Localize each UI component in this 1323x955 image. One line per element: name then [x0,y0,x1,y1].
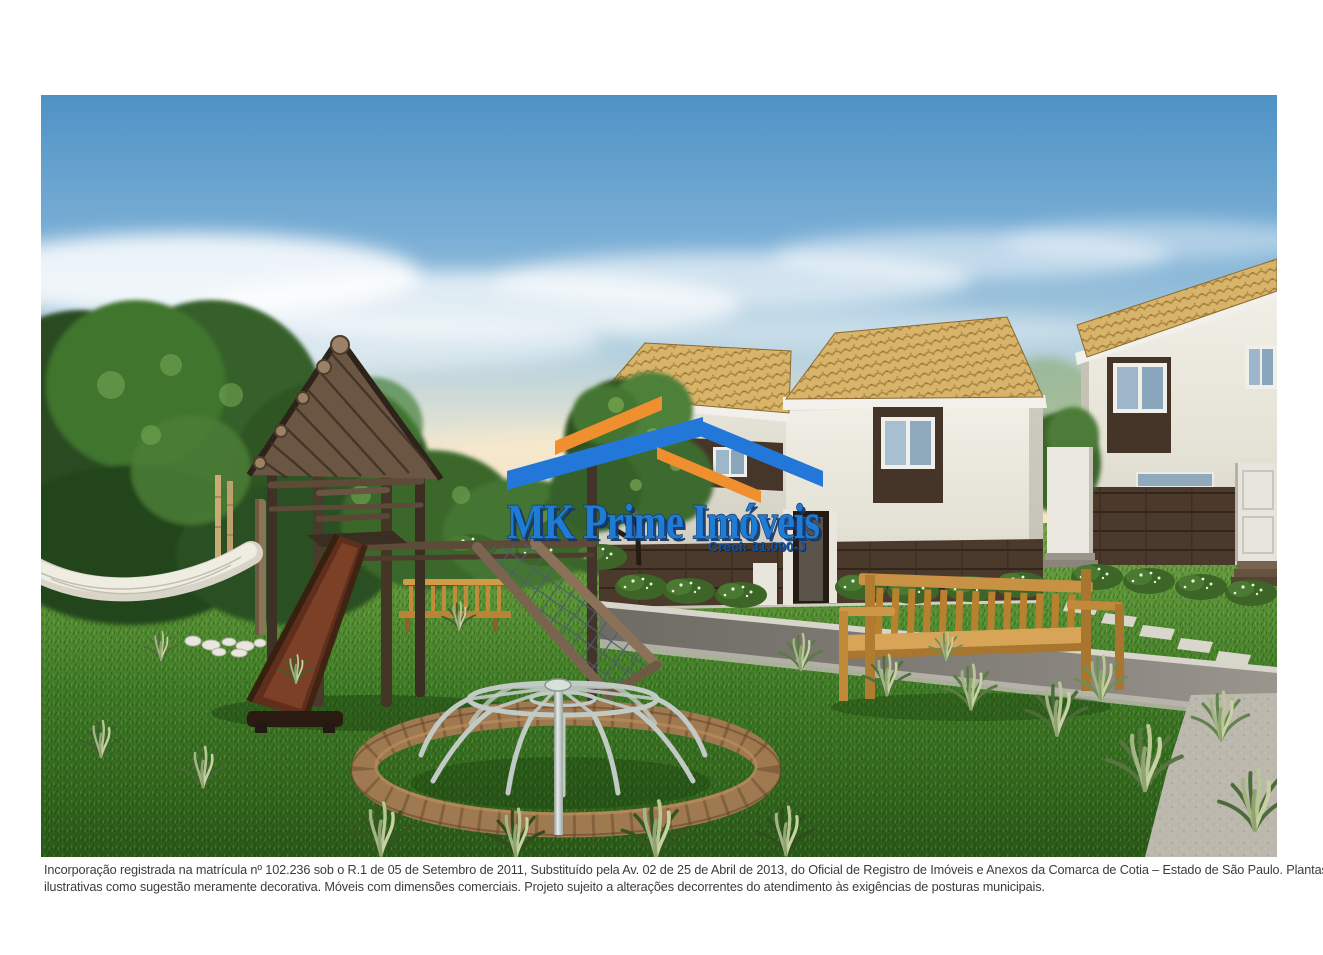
main-house-big-window [881,417,935,469]
bamboo-pole-2 [227,481,233,561]
bamboo-pole-1 [215,475,221,561]
creci-text: Creci: 31.090-J [708,539,806,554]
property-rendering-image: MK Prime Imóveis MK Prime Imóveis Creci:… [41,95,1277,857]
legal-disclaimer: Incorporação registrada na matrícula nº … [44,862,1284,896]
right-house-window-1 [1113,363,1167,413]
page: MK Prime Imóveis MK Prime Imóveis Creci:… [0,0,1323,955]
right-house-clerestory-window [1137,473,1213,487]
legal-disclaimer-line-2: ilustrativas como sugestão meramente dec… [44,879,1284,896]
legal-disclaimer-line-1: Incorporação registrada na matrícula nº … [44,862,1284,879]
right-house-lower-wall [1093,487,1235,565]
rendering-scene: MK Prime Imóveis MK Prime Imóveis Creci:… [41,95,1277,857]
right-house-window-2 [1245,345,1277,389]
gap-wall [1047,447,1093,557]
right-house-door [1235,463,1277,561]
